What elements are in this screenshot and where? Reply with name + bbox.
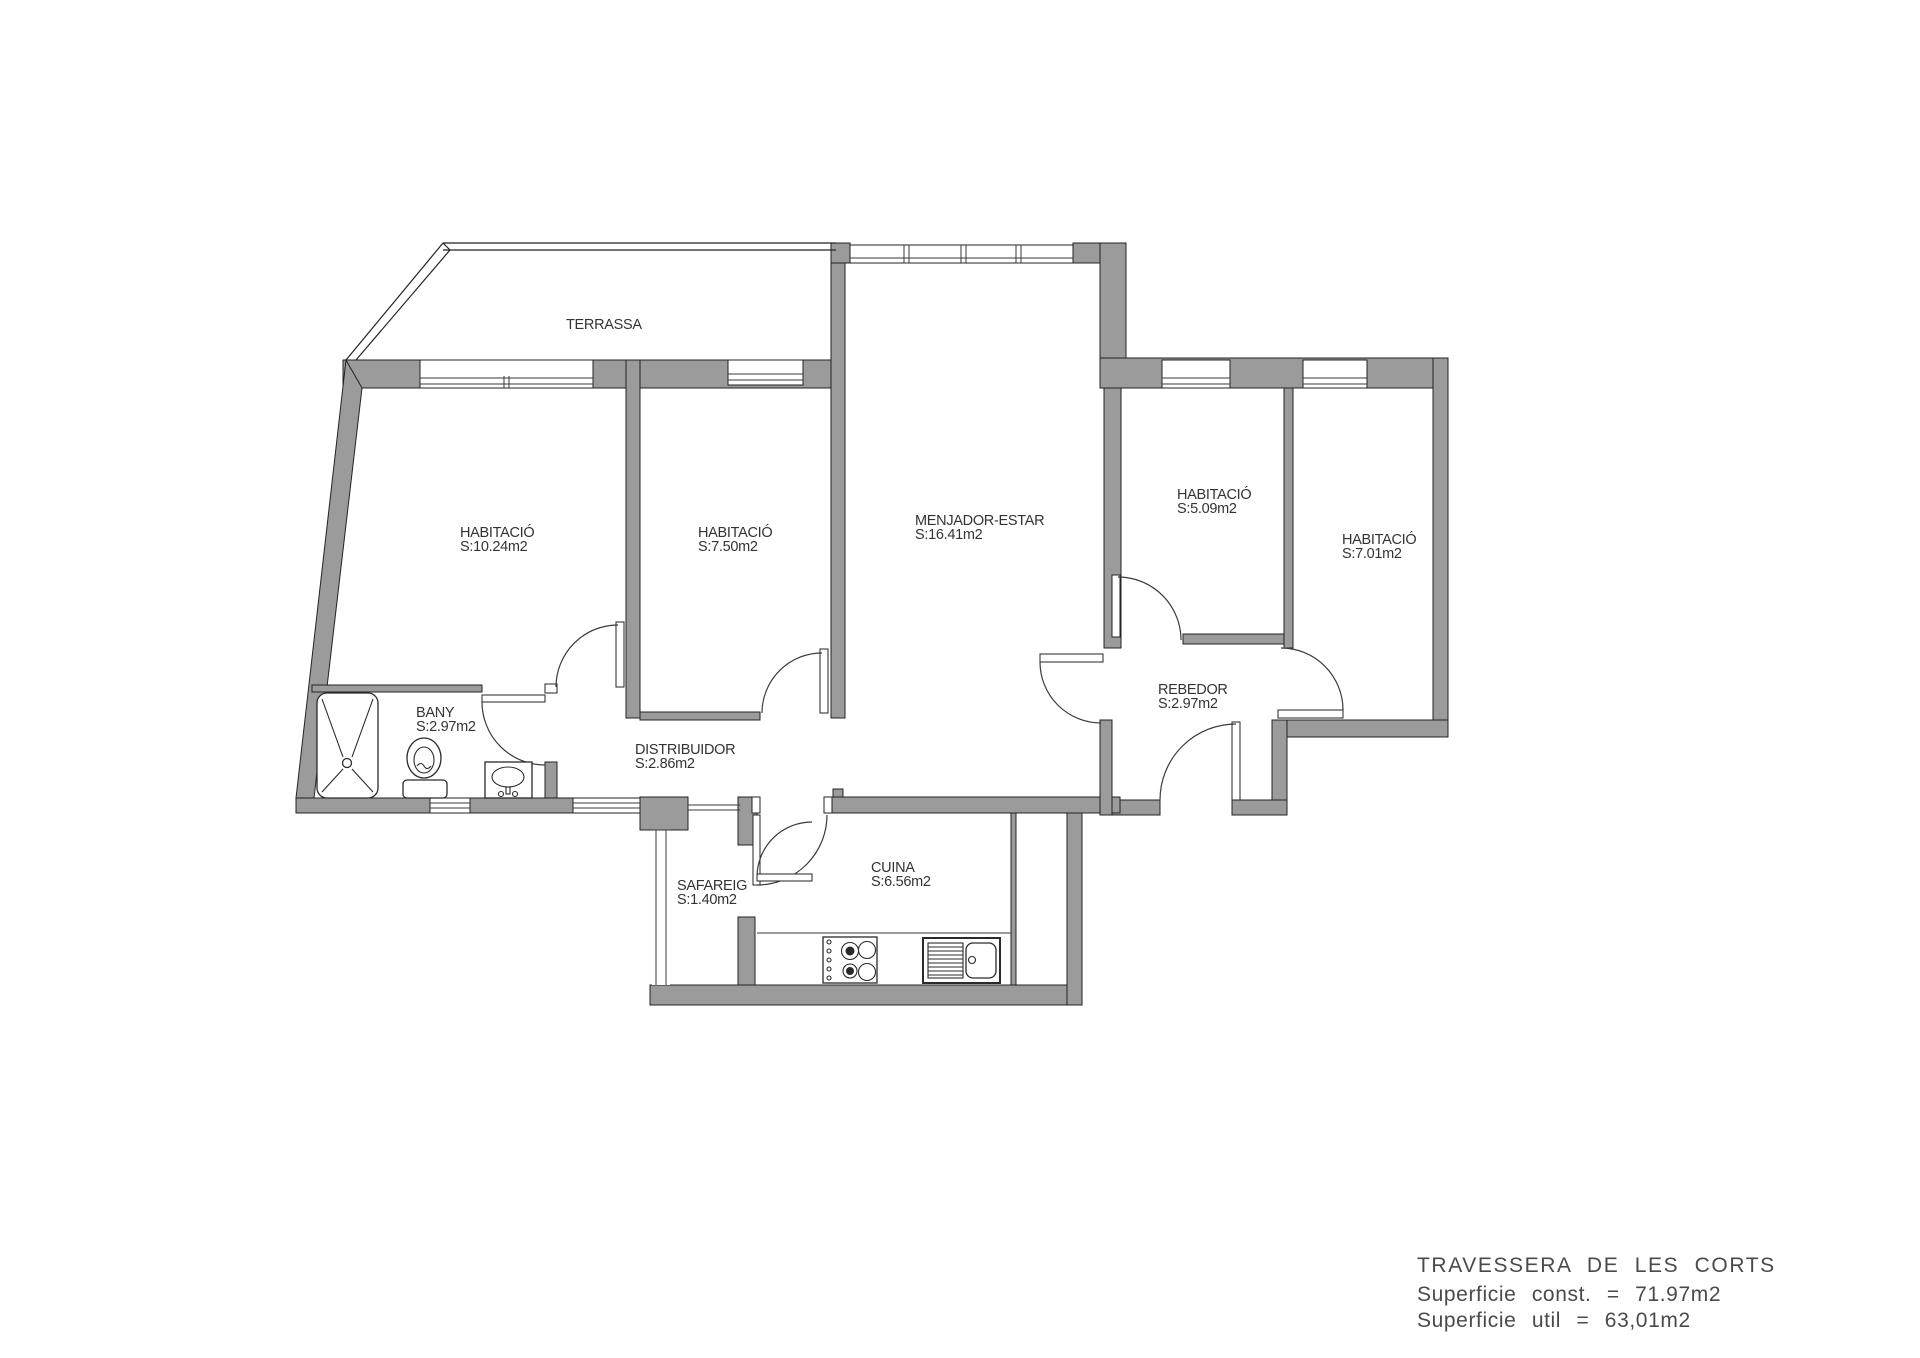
wall: [830, 797, 1120, 813]
title-street: TRAVESSERA DE LES CORTS: [1417, 1254, 1776, 1277]
shower: [317, 693, 378, 798]
door-arc: [757, 822, 812, 877]
title-surface-built: Superficie const. = 71.97m2: [1417, 1283, 1721, 1306]
wall: [1011, 813, 1016, 985]
door-arc: [556, 625, 618, 687]
wall: [626, 360, 640, 718]
wall: [1284, 388, 1293, 648]
door-leaf: [616, 622, 624, 687]
room-area-menjador: S:16.41m2: [915, 527, 983, 543]
wall: [640, 712, 760, 720]
door-arc: [482, 702, 545, 765]
entrance-door-leaf: [1232, 722, 1240, 800]
wall: [650, 985, 1082, 1005]
wall: [545, 762, 557, 798]
room-area-habitacio-3: S:5.09m2: [1177, 501, 1237, 517]
room-labels: TERRASSA HABITACIÓ S:10.24m2 HABITACIÓ S…: [416, 317, 1416, 908]
title-surface-usable: Superficie util = 63,01m2: [1417, 1309, 1691, 1332]
bathroom-sink: [485, 762, 532, 798]
floor-plan-drawing: TERRASSA HABITACIÓ S:10.24m2 HABITACIÓ S…: [0, 0, 1920, 1358]
door-arc: [1160, 724, 1236, 800]
terrace-railing: [346, 243, 836, 360]
title-block: TRAVESSERA DE LES CORTS Superficie const…: [1417, 1254, 1776, 1332]
wall: [1100, 358, 1448, 388]
room-area-distribuidor: S:2.86m2: [635, 756, 695, 772]
door-arc: [1040, 662, 1101, 723]
stove: [823, 937, 877, 983]
door-jamb: [752, 797, 760, 813]
wall: [1272, 720, 1448, 737]
wall: [312, 685, 482, 692]
door-arc: [1118, 577, 1181, 640]
door-jamb: [824, 797, 832, 813]
door-arc: [1281, 648, 1343, 710]
window: [728, 360, 803, 385]
toilet: [403, 738, 447, 798]
wall: [831, 243, 845, 718]
door-leaf: [757, 874, 812, 881]
window: [430, 798, 470, 813]
room-area-cuina: S:6.56m2: [871, 874, 931, 890]
doors: [482, 575, 1343, 885]
window: [573, 798, 640, 813]
wall: [1183, 634, 1290, 644]
door-leaf: [482, 695, 545, 702]
door-leaf: [1040, 654, 1103, 662]
door-jamb: [545, 684, 557, 693]
wall: [738, 917, 755, 988]
kitchen-sink: [923, 938, 1000, 983]
room-area-rebedor: S:2.97m2: [1158, 696, 1218, 712]
wall: [1100, 243, 1126, 362]
wall: [1100, 720, 1112, 815]
door-leaf: [1112, 575, 1120, 637]
wall: [833, 789, 843, 797]
wall: [831, 243, 850, 263]
room-area-habitacio-4: S:7.01m2: [1342, 546, 1402, 562]
door-leaf: [1278, 710, 1343, 718]
door-arc: [762, 653, 822, 713]
wall: [1433, 358, 1448, 737]
room-area-habitacio-2: S:7.50m2: [698, 539, 758, 555]
walls: [296, 243, 1448, 1005]
room-area-habitacio-1: S:10.24m2: [460, 539, 528, 555]
room-area-bany: S:2.97m2: [416, 719, 476, 735]
wall: [1232, 800, 1287, 815]
door-leaf: [820, 649, 828, 713]
floor-plan-page: TERRASSA HABITACIÓ S:10.24m2 HABITACIÓ S…: [0, 0, 1920, 1358]
window: [652, 830, 670, 985]
room-label-terrassa: TERRASSA: [566, 317, 642, 333]
wall: [640, 797, 688, 830]
room-area-safareig: S:1.40m2: [677, 892, 737, 908]
wall: [1067, 813, 1082, 1005]
